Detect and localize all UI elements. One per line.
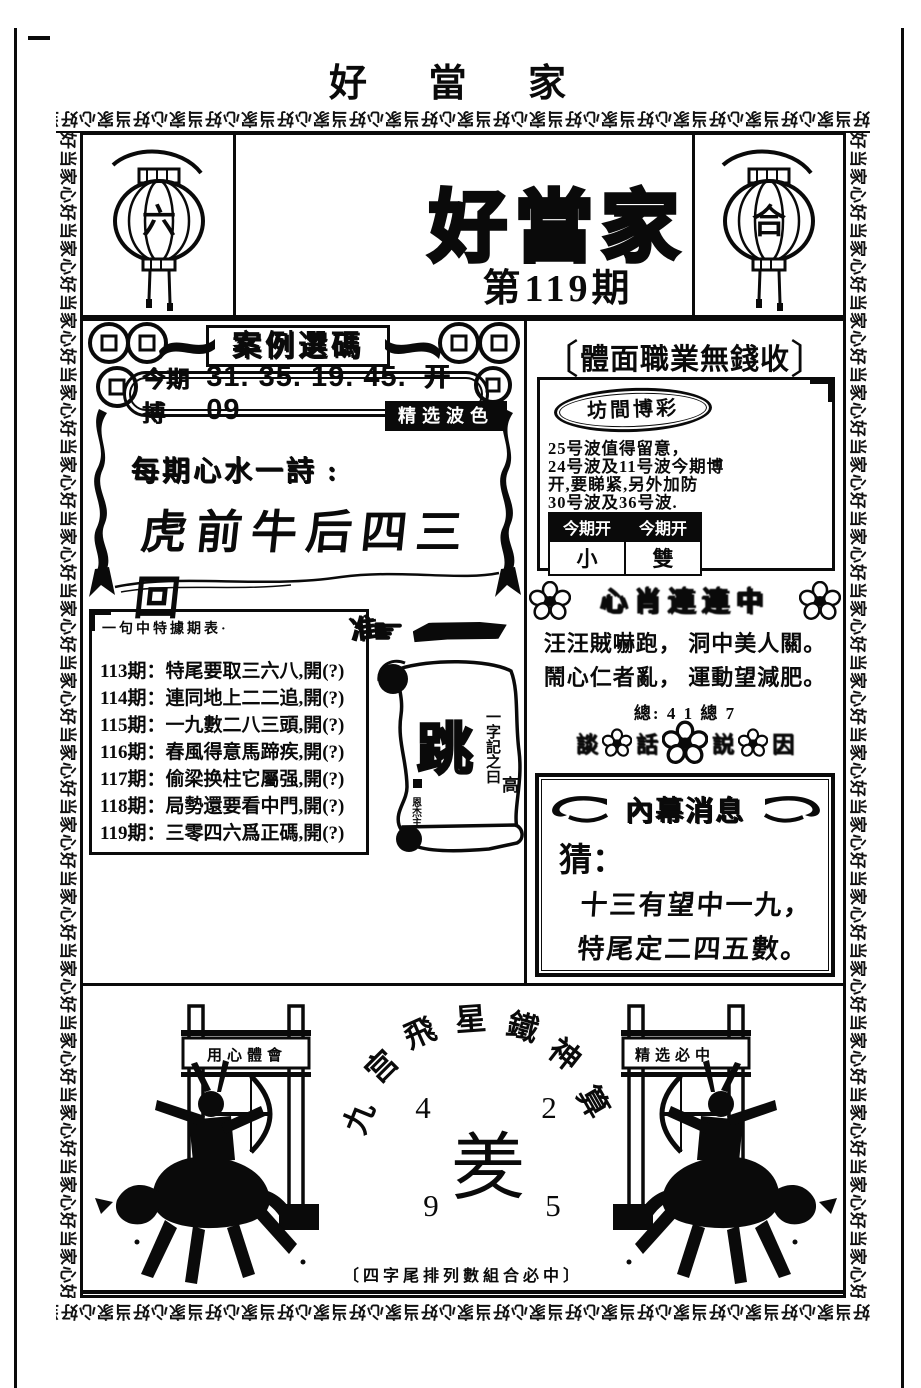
history-row: 113期：特尾要取三六八,開(?): [100, 658, 364, 685]
left-margin-rule: [14, 28, 17, 1388]
pointing-hand-icon: ☛: [371, 613, 405, 651]
flower-icon: [799, 581, 841, 621]
right-poem-line: 鬧心仁者亂， 運動望減肥。: [527, 661, 843, 695]
scroll-big-char: 跳: [417, 720, 473, 782]
tips-line: 30号波及36号波.: [548, 494, 830, 512]
palace-center-char: 羑: [443, 1108, 533, 1215]
flower-row-char: 因: [772, 727, 794, 759]
scroll-seal-text: 恩杰主: [410, 797, 422, 827]
flower-icon: [662, 720, 708, 766]
border-right-text: 好当家心好当家心好当家心好当家心好当家心好当家心好当家心好当家心好当家心好当家心…: [846, 132, 870, 1298]
pill-label: 今期搏: [142, 360, 206, 428]
flower-row-char: 説: [712, 727, 734, 759]
border-left-text: 好当家心好当家心好当家心好当家心好当家心好当家心好当家心好当家心好当家心好当家心…: [56, 132, 80, 1298]
tips-line: 24号波及11号波今期博: [548, 458, 830, 476]
history-row: 117期：偷梁换柱它屬强,開(?): [100, 766, 364, 793]
arc-title-char: 九: [330, 1094, 383, 1140]
tips-oval-title: 坊間博彩: [553, 385, 712, 434]
insider-info-box: 內幕消息 猜： 十三有望中一九， 特尾定二四五數。: [535, 773, 835, 977]
right-poem-line: 汪汪賊嚇跑， 洞中美人關。: [527, 627, 843, 661]
corner-tick: [28, 36, 50, 40]
insider-line: 十三有望中一九，: [579, 883, 822, 927]
flower-icon: [529, 581, 571, 621]
left-lantern-char: 六: [142, 203, 176, 241]
page-top-title: 好 當 家: [0, 52, 921, 107]
flower-row-char: 談: [576, 727, 598, 759]
bottom-rule: [83, 1290, 843, 1294]
prediction-table: 今期开 今期开 小 雙: [548, 512, 702, 576]
flower-banner: 心肖連連中: [527, 577, 843, 621]
history-row: 119期：三零四六爲正碼,開(?): [100, 820, 364, 847]
lantern-icon: 六: [95, 143, 223, 311]
tips-text: 25号波值得留意， 24号波及11号波今期博 开,要睇紧,另外加防 30号波及3…: [548, 440, 830, 512]
prediction-table-header: 今期开: [549, 513, 625, 541]
right-panel: 〔體面職業無錢收〕 坊間博彩 25号波值得留意， 24号波及11号波今期博 开,…: [527, 321, 843, 983]
history-header: 一句中特據期表·: [102, 618, 229, 638]
bottom-section: 用心體會: [83, 983, 843, 1298]
prediction-size-value: 小: [549, 541, 625, 575]
border-top-text: 好当家心好当家心好当家心好当家心好当家心好当家心好当家心好当家心好当家心好当家心…: [56, 106, 870, 133]
history-row: 116期：春風得意馬蹄疾,開(?): [100, 739, 364, 766]
scroll-icon: 一字記之曰 高 跳 恩杰主: [369, 651, 527, 863]
history-row: 118期：局勢還要看中門,開(?): [100, 793, 364, 820]
flower-row-char: 話: [636, 727, 658, 759]
squiggle-line-icon: [111, 565, 503, 595]
insider-line: 特尾定二四五數。: [576, 927, 819, 971]
ribbon-swoosh-icon: [383, 327, 443, 361]
arc-title-char: 宫: [353, 1038, 407, 1092]
flower-icon: [738, 728, 768, 758]
history-row: 114期：連同地上二二追,開(?): [100, 685, 364, 712]
masthead: 六: [83, 135, 843, 321]
scroll-small-char: 高: [502, 775, 519, 795]
arc-title-char: 飛: [395, 1004, 442, 1058]
tips-line: 开,要睇紧,另外加防: [548, 476, 830, 494]
history-list-box: 一句中特據期表· 113期：特尾要取三六八,開(?) 114期：連同地上二二追,…: [89, 609, 369, 855]
palace-number-top-right: 2: [531, 1090, 567, 1126]
prediction-parity-value: 雙: [625, 541, 701, 575]
flower-banner-text: 心肖連連中: [567, 579, 803, 618]
palace-number-top-left: 4: [405, 1090, 441, 1126]
border-bottom-text: 好当家心好当家心好当家心好当家心好当家心好当家心好当家心好当家心好当家心好当家心…: [56, 1299, 870, 1324]
history-row: 115期：一九數二八三頭,開(?): [100, 712, 364, 739]
content-frame: 六: [80, 132, 846, 1298]
right-poem: 汪汪賊嚇跑， 洞中美人關。 鬧心仁者亂， 運動望減肥。: [527, 627, 843, 695]
palace-number-bottom-right: 5: [535, 1188, 571, 1224]
arc-title-char: 神: [540, 1025, 592, 1080]
warrior-archer-right-icon: [611, 992, 839, 1288]
poem-label: 每期心水一詩 :: [131, 449, 339, 489]
bottom-caption: 〔四字尾排列數組合必中〕: [83, 1262, 843, 1286]
guess-label: 猜：: [559, 833, 625, 881]
prediction-table-header: 今期开: [625, 513, 701, 541]
betting-tips-box: 坊間博彩 25号波值得留意， 24号波及11号波今期博 开,要睇紧,另外加防 3…: [537, 377, 835, 571]
left-lantern-cell: 六: [83, 135, 236, 315]
insider-prediction: 十三有望中一九， 特尾定二四五數。: [576, 883, 822, 971]
bracket-left: 〔: [539, 337, 580, 382]
left-panel: 案例選碼 今期搏 31. 35. 19. 45. 09 开旺 精选波色 每期心水…: [83, 321, 524, 983]
arc-title-char: 星: [453, 993, 487, 1040]
wave-color-badge: 精选波色: [385, 401, 507, 431]
left-gate-banner: 用心體會: [187, 1044, 307, 1065]
warrior-archer-left-icon: [93, 992, 321, 1288]
scroll-vertical-label: 一字記之曰: [484, 709, 501, 784]
headline-text: 體面職業無錢收: [580, 344, 790, 376]
flower-icon: [602, 728, 632, 758]
ribbon-curl-icon: [761, 791, 823, 825]
history-rows: 113期：特尾要取三六八,開(?) 114期：連同地上二二追,開(?) 115期…: [100, 658, 364, 847]
arc-title-char: 鐵: [502, 999, 544, 1051]
flower-character-row: 談 話 説 因: [527, 719, 843, 767]
bracket-right: 〕: [790, 337, 831, 382]
issue-number: 第119期: [323, 257, 793, 312]
right-margin-rule: [901, 28, 904, 1388]
tips-line: 25号波值得留意，: [548, 440, 830, 458]
newspaper-page: 好 當 家 好当家心好当家心好当家心好当家心好当家心好当家心好当家心好当家心好当…: [0, 0, 921, 1388]
right-gate-banner: 精选必中: [615, 1044, 735, 1065]
